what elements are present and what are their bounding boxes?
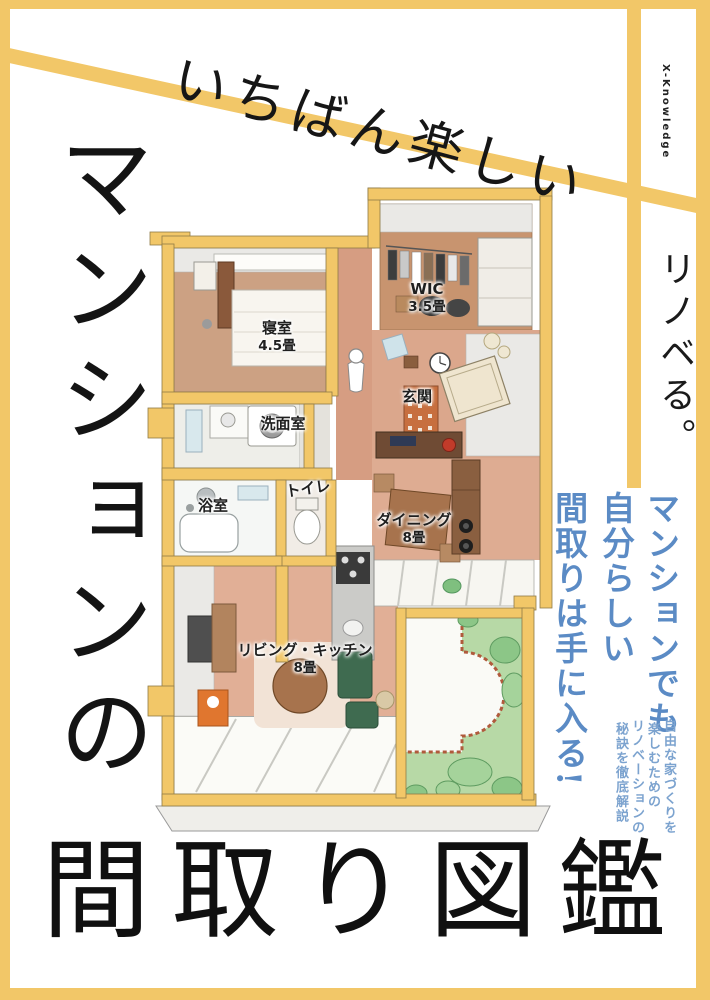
catch-line-2: 自分らしい xyxy=(598,491,633,666)
frame-top xyxy=(0,0,710,9)
toilet-furniture xyxy=(294,498,320,544)
frame-left xyxy=(0,0,10,1000)
bathtub xyxy=(180,514,238,552)
tv xyxy=(188,616,212,662)
label-bedroom: 寝室 4.5畳 xyxy=(258,319,295,355)
tank xyxy=(296,498,318,510)
shower-head xyxy=(186,504,194,512)
hallway-lower-floor xyxy=(336,396,372,480)
label-entrance: 玄関 xyxy=(402,388,432,407)
basket xyxy=(376,691,394,709)
person-figure xyxy=(348,349,364,392)
red-kettle xyxy=(443,439,456,452)
stool xyxy=(404,356,418,368)
wall-lamp xyxy=(202,319,212,329)
title-char: 取 xyxy=(171,838,279,946)
catch-line-1: マンションでも xyxy=(643,491,678,736)
catch-sub-4: 秘訣を徹底解説 xyxy=(611,722,630,824)
title-main: 間 取 り 図 鑑 xyxy=(42,838,666,946)
pegboard xyxy=(194,262,216,290)
catch-line-3: 間取りは手に入る! xyxy=(551,491,586,788)
straw-hat xyxy=(484,333,500,349)
label-bath: 浴室 xyxy=(198,497,228,516)
console-items xyxy=(390,436,416,446)
basin xyxy=(221,413,235,427)
tv-board xyxy=(212,604,236,672)
frame-bottom xyxy=(0,988,710,1000)
book-cover: いちばん楽しい マンションの 間 取 り 図 鑑 X-Knowledge リノベ… xyxy=(0,0,710,1000)
plant xyxy=(443,579,461,593)
stove xyxy=(336,552,370,584)
frame-right xyxy=(696,0,710,1000)
toilet-bowl xyxy=(294,510,320,544)
publisher-logo: X-Knowledge xyxy=(660,64,671,159)
title-char: 間 xyxy=(42,838,150,946)
label-dining: ダイニング 8畳 xyxy=(376,511,451,547)
straw-hat xyxy=(498,346,510,358)
brand-logo: リノベる。 xyxy=(648,250,700,460)
label-wic: WIC 3.5畳 xyxy=(408,280,445,316)
window xyxy=(186,410,202,452)
window xyxy=(238,486,268,500)
title-vertical: マンションの xyxy=(50,128,145,794)
title-char: 鑑 xyxy=(558,838,666,946)
title-char: り xyxy=(300,838,408,946)
bag xyxy=(446,299,470,317)
sink xyxy=(343,620,363,636)
slab xyxy=(156,806,550,831)
sofa xyxy=(346,702,378,728)
garden xyxy=(398,612,526,806)
label-living-kitchen: リビング・キッチン 8畳 xyxy=(237,641,372,677)
shelf xyxy=(478,238,532,326)
label-washroom: 洗面室 xyxy=(260,415,305,434)
title-char: 図 xyxy=(429,838,537,946)
frame-inner-stripe xyxy=(627,0,641,488)
